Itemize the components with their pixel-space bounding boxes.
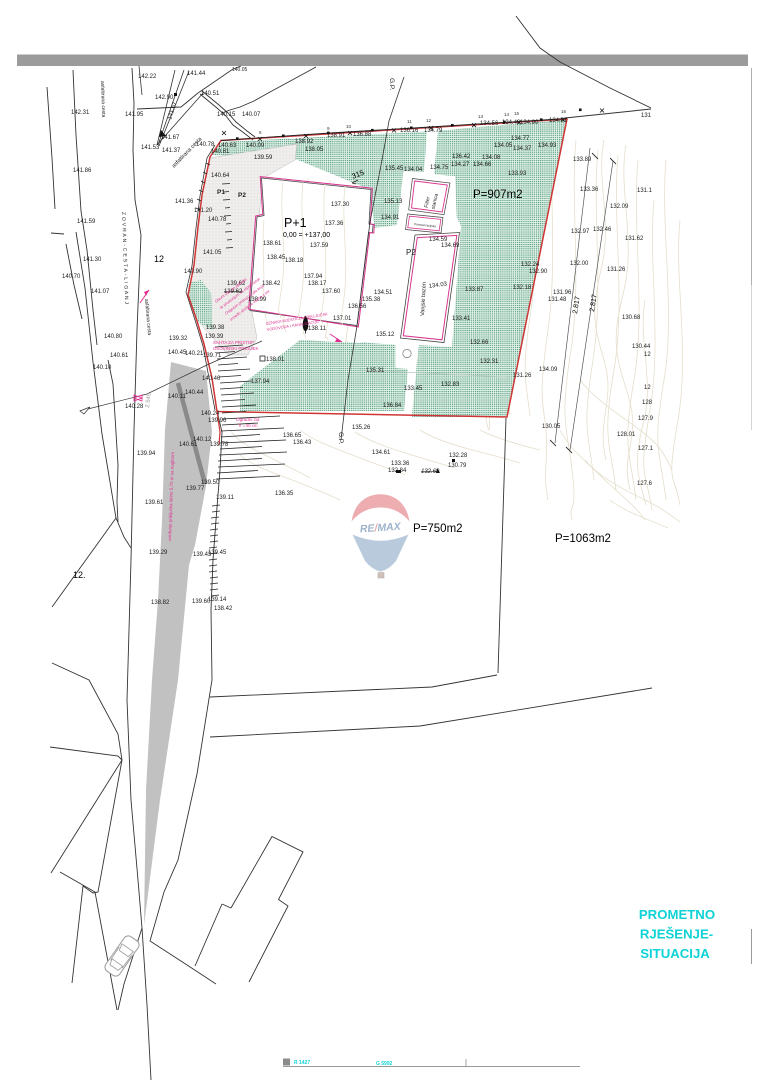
svg-text:139.61: 139.61 <box>145 500 164 506</box>
svg-text:138.05: 138.05 <box>305 147 324 153</box>
svg-text:130.44: 130.44 <box>632 344 651 350</box>
svg-text:139.94: 139.94 <box>137 451 156 457</box>
svg-text:R 1427: R 1427 <box>294 1060 310 1066</box>
svg-text:136.35: 136.35 <box>275 491 294 497</box>
svg-text:134.09: 134.09 <box>539 367 558 373</box>
svg-text:136.42: 136.42 <box>452 154 471 160</box>
svg-text:138.92: 138.92 <box>295 139 314 145</box>
svg-text:140.21: 140.21 <box>185 351 204 357</box>
svg-text:131: 131 <box>641 113 652 119</box>
svg-text:PROMETNO: PROMETNO <box>639 907 715 922</box>
svg-text:12: 12 <box>644 352 651 358</box>
svg-text:132.31: 132.31 <box>480 359 499 365</box>
svg-text:6: 6 <box>259 130 262 135</box>
svg-text:138.82: 138.82 <box>151 600 170 606</box>
svg-text:135.31: 135.31 <box>366 368 385 374</box>
svg-text:134.93: 134.93 <box>538 143 557 149</box>
svg-text:140.07: 140.07 <box>242 112 261 118</box>
svg-text:139.59: 139.59 <box>254 155 273 161</box>
svg-text:134.69: 134.69 <box>441 243 460 249</box>
svg-text:140.09: 140.09 <box>246 143 265 149</box>
svg-text:137.01: 137.01 <box>333 316 352 322</box>
svg-text:140.05: 140.05 <box>232 67 248 73</box>
svg-text:OSOVINSKI PRESJEK: OSOVINSKI PRESJEK <box>213 346 258 351</box>
svg-text:132.66: 132.66 <box>470 340 489 346</box>
svg-text:141.20: 141.20 <box>194 208 213 214</box>
svg-text:132.18: 132.18 <box>513 285 532 291</box>
svg-text:137.30: 137.30 <box>331 202 350 208</box>
svg-text:136.84: 136.84 <box>383 403 402 409</box>
svg-text:137.60: 137.60 <box>322 289 341 295</box>
svg-text:141.67: 141.67 <box>161 135 180 141</box>
svg-text:10: 10 <box>346 124 352 129</box>
svg-text:141.30: 141.30 <box>83 257 102 263</box>
svg-text:134.79: 134.79 <box>424 128 443 134</box>
svg-text:139.38: 139.38 <box>206 325 225 331</box>
svg-text:135.26: 135.26 <box>352 425 371 431</box>
svg-text:136.88: 136.88 <box>353 132 372 138</box>
svg-text:132.00: 132.00 <box>570 261 589 267</box>
svg-text:SITUACIJA: SITUACIJA <box>640 946 710 961</box>
svg-text:141.37: 141.37 <box>162 148 181 154</box>
svg-text:134.05: 134.05 <box>494 143 513 149</box>
svg-text:12: 12 <box>154 254 164 264</box>
svg-text:12: 12 <box>426 118 432 123</box>
svg-text:139.11: 139.11 <box>216 495 235 501</box>
svg-text:132.97: 132.97 <box>571 229 590 235</box>
svg-text:0,00 = +137,00: 0,00 = +137,00 <box>283 232 330 239</box>
svg-text:134.56: 134.56 <box>480 121 499 127</box>
svg-text:133.93: 133.93 <box>508 171 527 177</box>
svg-text:139.32: 139.32 <box>169 336 188 342</box>
svg-text:P2: P2 <box>238 192 246 199</box>
svg-text:140.64: 140.64 <box>211 173 230 179</box>
svg-text:P+1: P+1 <box>284 216 307 230</box>
svg-text:134.66: 134.66 <box>473 162 492 168</box>
svg-text:130.68: 130.68 <box>622 315 641 321</box>
svg-text:138.61: 138.61 <box>263 241 282 247</box>
svg-text:136.16: 136.16 <box>400 128 419 134</box>
svg-text:12.: 12. <box>73 570 86 580</box>
svg-text:P=750m2: P=750m2 <box>413 523 463 535</box>
svg-text:G.P.: G.P. <box>388 78 395 90</box>
svg-text:140.44: 140.44 <box>185 390 204 396</box>
svg-text:11: 11 <box>407 119 412 124</box>
svg-text:SAHTA ZA PRISTOP: SAHTA ZA PRISTOP <box>213 340 254 345</box>
svg-text:131.62: 131.62 <box>625 236 644 242</box>
svg-text:139.77: 139.77 <box>186 486 205 492</box>
svg-text:130.79: 130.79 <box>448 463 467 469</box>
svg-text:138.45: 138.45 <box>267 255 286 261</box>
svg-text:140.78: 140.78 <box>208 217 227 223</box>
svg-text:141.86: 141.86 <box>73 168 92 174</box>
svg-text:140.90: 140.90 <box>184 269 203 275</box>
svg-text:142.31: 142.31 <box>71 110 90 116</box>
svg-text:136.43: 136.43 <box>293 440 312 446</box>
svg-text:P1: P1 <box>217 189 225 196</box>
svg-text:134.90: 134.90 <box>520 120 539 126</box>
svg-text:138.91: 138.91 <box>327 133 346 139</box>
svg-text:139.78: 139.78 <box>210 442 229 448</box>
svg-text:131.48: 131.48 <box>548 297 567 303</box>
svg-text:136.56: 136.56 <box>348 304 367 310</box>
svg-text:9: 9 <box>327 126 330 131</box>
svg-text:138.18: 138.18 <box>285 258 304 264</box>
svg-text:140.11: 140.11 <box>168 394 187 400</box>
svg-text:134.37: 134.37 <box>513 146 532 152</box>
svg-text:141.59: 141.59 <box>77 219 96 225</box>
svg-text:134.77: 134.77 <box>511 136 530 142</box>
svg-text:134.08: 134.08 <box>482 155 501 161</box>
svg-text:138.01: 138.01 <box>266 357 285 363</box>
svg-text:140.15: 140.15 <box>217 112 236 118</box>
svg-text:15: 15 <box>514 111 520 116</box>
svg-text:136.65: 136.65 <box>283 433 302 439</box>
svg-text:137.94: 137.94 <box>304 274 323 280</box>
svg-text:132.46: 132.46 <box>593 227 612 233</box>
svg-text:138.17: 138.17 <box>308 281 327 287</box>
svg-text:134.27: 134.27 <box>451 162 470 168</box>
svg-text:134.01: 134.01 <box>549 118 568 124</box>
svg-text:139.71: 139.71 <box>203 353 222 359</box>
svg-text:140.46: 140.46 <box>202 376 221 382</box>
svg-text:P=1063m2: P=1063m2 <box>555 533 611 545</box>
svg-text:140.80: 140.80 <box>104 334 123 340</box>
svg-text:139.14: 139.14 <box>208 597 227 603</box>
svg-text:134.04: 134.04 <box>404 167 423 173</box>
svg-text:140.81: 140.81 <box>211 149 230 155</box>
svg-text:142.90: 142.90 <box>155 95 174 101</box>
svg-text:132.24: 132.24 <box>521 262 540 268</box>
svg-text:138.42: 138.42 <box>214 606 233 612</box>
svg-text:132.83: 132.83 <box>441 382 460 388</box>
svg-text:137.36: 137.36 <box>325 221 344 227</box>
svg-text:h = 80 cm: h = 80 cm <box>239 423 258 428</box>
svg-text:14: 14 <box>504 112 510 117</box>
svg-text:140.28: 140.28 <box>125 404 144 410</box>
svg-text:135.45: 135.45 <box>385 166 404 172</box>
svg-text:141.07: 141.07 <box>91 289 110 295</box>
svg-text:128: 128 <box>642 400 653 406</box>
svg-text:127.9: 127.9 <box>638 416 654 422</box>
svg-text:141.44: 141.44 <box>187 71 206 77</box>
svg-text:131.26: 131.26 <box>607 267 626 273</box>
svg-text:134.51: 134.51 <box>374 290 393 296</box>
svg-text:141.36: 141.36 <box>175 199 194 205</box>
svg-text:140.70: 140.70 <box>62 274 81 280</box>
svg-text:127.6: 127.6 <box>637 481 653 487</box>
svg-text:asfaltirana cesta: asfaltirana cesta <box>99 81 106 118</box>
svg-text:140.24: 140.24 <box>201 411 220 417</box>
svg-text:132.28: 132.28 <box>449 453 468 459</box>
svg-text:130.05: 130.05 <box>542 424 561 430</box>
svg-text:139.96: 139.96 <box>208 418 227 424</box>
svg-text:131.26: 131.26 <box>513 373 532 379</box>
svg-text:141.53: 141.53 <box>141 145 160 151</box>
svg-text:140.61: 140.61 <box>110 353 129 359</box>
svg-text:134.91: 134.91 <box>381 215 400 221</box>
svg-text:16: 16 <box>561 109 567 114</box>
svg-text:131.96: 131.96 <box>553 290 572 296</box>
svg-text:140.51: 140.51 <box>201 91 220 97</box>
svg-text:137.59: 137.59 <box>310 243 329 249</box>
svg-text:G 5992: G 5992 <box>376 1061 393 1067</box>
svg-text:Ogradni zid: Ogradni zid <box>236 417 260 422</box>
svg-text:13: 13 <box>478 114 484 119</box>
svg-text:139.50: 139.50 <box>201 480 220 486</box>
svg-text:139.45: 139.45 <box>208 550 227 556</box>
svg-text:135.38: 135.38 <box>362 297 381 303</box>
svg-text:G.P.: G.P. <box>337 432 344 444</box>
svg-text:132.09: 132.09 <box>610 204 629 210</box>
svg-text:132.90: 132.90 <box>529 269 548 275</box>
svg-text:133.41: 133.41 <box>452 316 471 322</box>
svg-text:P2: P2 <box>406 248 416 257</box>
svg-text:128.01: 128.01 <box>617 432 636 438</box>
svg-text:RJEŠENJE-: RJEŠENJE- <box>640 927 713 942</box>
svg-text:141.05: 141.05 <box>203 250 222 256</box>
svg-text:142.22: 142.22 <box>138 74 157 80</box>
svg-text:137.94: 137.94 <box>251 379 270 385</box>
svg-text:138.42: 138.42 <box>262 281 281 287</box>
svg-text:P=907m2: P=907m2 <box>473 189 523 201</box>
svg-text:133.36: 133.36 <box>391 461 410 467</box>
svg-text:131.1: 131.1 <box>637 188 653 194</box>
svg-text:134.75: 134.75 <box>430 165 449 171</box>
svg-text:133.36: 133.36 <box>580 187 599 193</box>
svg-text:140.10: 140.10 <box>93 365 112 371</box>
svg-text:138.11: 138.11 <box>308 326 327 332</box>
svg-text:133.45: 133.45 <box>404 386 423 392</box>
svg-text:133.89: 133.89 <box>573 157 592 163</box>
svg-text:135.12: 135.12 <box>376 332 395 338</box>
svg-text:127.1: 127.1 <box>638 446 654 452</box>
svg-text:141.95: 141.95 <box>125 112 144 118</box>
svg-text:133.87: 133.87 <box>465 287 484 293</box>
svg-text:139.29: 139.29 <box>149 550 168 556</box>
svg-text:134.61: 134.61 <box>372 450 391 456</box>
svg-text:134.40: 134.40 <box>502 120 521 126</box>
svg-text:12: 12 <box>644 385 651 391</box>
svg-text:135.13: 135.13 <box>384 199 403 205</box>
